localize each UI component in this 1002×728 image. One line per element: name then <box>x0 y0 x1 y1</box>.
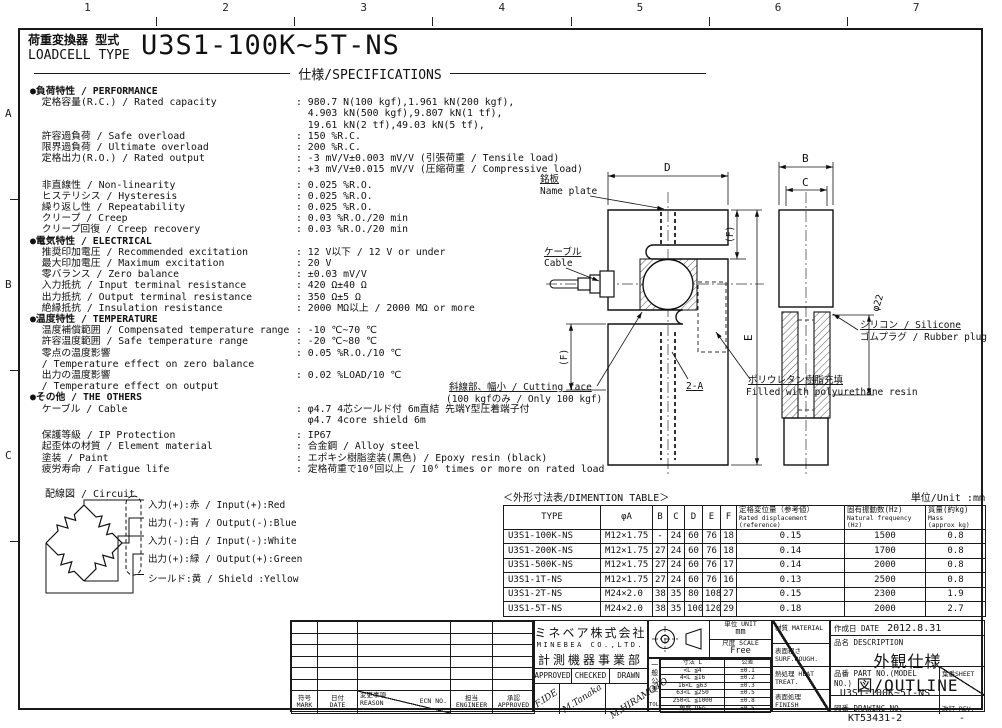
silicone-label-en: ゴムプラグ / Rubber plug <box>860 331 987 343</box>
tolerance-row: 角度 DEG±0.5 <box>661 705 771 713</box>
revision-empty-cell <box>451 679 493 691</box>
spec-value: : 合金鋼 / Alloy steel <box>296 441 420 452</box>
dim-table-row: U3S1-200K-NSM12×1.7527246076180.1417000.… <box>504 544 986 559</box>
revision-empty-cell <box>451 633 493 645</box>
revision-empty-cell <box>318 656 358 668</box>
revision-empty-cell <box>292 645 318 657</box>
rubber-plug-left <box>782 312 798 418</box>
dim-table-cell: 2.7 <box>926 602 986 617</box>
revision-empty-cell <box>358 633 451 645</box>
dim-col-header: φA <box>601 506 653 530</box>
tolerance-row: 250<L ≦1000±0.8 <box>661 697 771 705</box>
silicone-label-jp: シリコン / Silicone <box>860 320 961 331</box>
revision-header-cell: 符号 MARK <box>292 691 318 714</box>
spec-label: 非直線性 / Non-linearity <box>30 180 296 191</box>
dim-table-cell: U3S1-100K-NS <box>504 529 601 544</box>
dim-table-cell: 35 <box>668 587 685 602</box>
material-label: 材質 MATERIAL <box>773 621 829 644</box>
border-tick <box>156 17 157 26</box>
cutting-face-leader <box>597 312 642 386</box>
dim-table-cell: 0.8 <box>926 529 986 544</box>
dim-col-header-main: 定格変位量（参考値） <box>739 506 842 515</box>
approved-column-label: APPROVED <box>534 669 572 683</box>
dim-table-cell: 24 <box>668 544 685 559</box>
revision-empty-cell <box>358 656 451 668</box>
general-tolerance-label-en: TOL <box>649 702 659 710</box>
sheet-label: 葉番SHEET <box>942 668 982 678</box>
dim-table-cell: 17 <box>721 558 737 573</box>
company-block: ミネベア株式会社 MINEBEA CO.,LTD. 計測機器事業部 APPROV… <box>533 620 648 712</box>
spec-value: : 420 Ω±40 Ω <box>296 280 367 291</box>
border-tick <box>847 17 848 26</box>
spec-value: : 980.7 N(100 kgf),1.961 kN(200 kgf), 4.… <box>296 97 514 131</box>
cable-gland-nut <box>600 271 614 297</box>
dim-col-header-main: 固有振動数(Hz) <box>847 506 923 515</box>
dim-table-cell: 27 <box>721 587 737 602</box>
spec-value: : 200 %R.C. <box>296 142 361 153</box>
revision-table: 符号 MARK日付 DATE変更事項 REASONECN NO.担当 ENGIN… <box>290 620 533 712</box>
dim-col-header: 質量(約kg)Mass (approx kg) <box>926 506 986 530</box>
spec-label: 許容過負荷 / Safe overload <box>30 131 296 142</box>
tolerance-cell: 角度 DEG <box>661 705 725 713</box>
dim-label-F-bottom: (F) <box>559 349 570 366</box>
border-column-number: 5 <box>637 1 644 14</box>
surface-roughness-label: 表面粗さ SURF.ROUGH. <box>773 644 829 667</box>
dim-col-header-main: 質量(約kg) <box>928 506 983 515</box>
company-name-en: MINEBEA CO.,LTD. <box>534 641 647 649</box>
dim-col-header: TYPE <box>504 506 601 530</box>
unit-scale-box: 単位 UNIT mm 尺度 SCALE Free <box>709 620 772 658</box>
spec-label: 入力抵抗 / Input terminal resistance <box>30 280 296 291</box>
spec-value: : 0.025 %R.O. <box>296 191 373 202</box>
revision-empty-cell <box>318 622 358 634</box>
dim-col-header-main: C <box>670 513 682 522</box>
dim-col-header-sub: Rated displacement (reference) <box>739 515 842 529</box>
dim-table-cell: M24×2.0 <box>601 587 653 602</box>
dim-col-header: F <box>721 506 737 530</box>
rev-label: 改訂 REV. <box>942 705 975 713</box>
wire-label: 入力(-):白 / Input(-):White <box>148 533 297 547</box>
material-finish-block: 材質 MATERIAL 表面粗さ SURF.ROUGH. 熱処理 HEAT TR… <box>772 620 830 712</box>
center-hole <box>643 260 693 310</box>
dim-table-cell: M12×1.75 <box>601 544 653 559</box>
dim-col-header: D <box>685 506 703 530</box>
dim-table-cell: 76 <box>703 573 721 588</box>
revision-empty-cell <box>451 656 493 668</box>
spec-value: : 0.025 %R.O. <box>296 202 373 213</box>
spec-label: 定格出力(R.O.) / Rated output <box>30 153 296 175</box>
dim-col-header-sub: Natural frequency (Hz) <box>847 515 923 529</box>
revision-empty-cell <box>358 622 451 634</box>
dim-col-header-main: φA <box>603 513 650 522</box>
dim-table-cell: 60 <box>685 529 703 544</box>
specifications-heading-text: 仕様/SPECIFICATIONS <box>298 64 441 83</box>
dim-col-header-sub: Mass (approx kg) <box>928 515 983 529</box>
ecn-label: ECN NO. <box>420 698 447 706</box>
border-column-number: 3 <box>360 1 367 14</box>
two-a-label: 2-A <box>686 381 703 392</box>
spec-value: : -10 ℃~70 ℃ <box>296 325 377 336</box>
spec-label: 保護等級 / IP Protection <box>30 430 296 441</box>
dim-table-row: U3S1-100K-NSM12×1.75-246076180.1515000.8 <box>504 529 986 544</box>
dim-table-cell: 1.9 <box>926 587 986 602</box>
spec-value: : -20 ℃~80 ℃ <box>296 336 377 347</box>
general-tolerance-label: 一般公差 TOL <box>649 659 660 711</box>
revision-empty-cell <box>493 622 535 634</box>
specifications-heading: 仕様/SPECIFICATIONS <box>34 64 706 83</box>
resin-cavity-hidden <box>698 282 726 352</box>
loadcell-type-label-en: LOADCELL TYPE <box>28 48 130 63</box>
border-column-number: 6 <box>775 1 782 14</box>
dim-table-cell: 27 <box>653 573 668 588</box>
company-division: 計測機器事業部 <box>534 651 647 668</box>
revision-empty-cell <box>292 679 318 691</box>
dim-col-header-main: D <box>687 513 700 522</box>
projection-symbol-box <box>648 620 710 658</box>
spec-value: : 12 V以下 / 12 V or under <box>296 247 445 258</box>
dim-col-header: 固有振動数(Hz)Natural frequency (Hz) <box>845 506 926 530</box>
dim-table-cell: U3S1-500K-NS <box>504 558 601 573</box>
revision-empty-cell <box>493 645 535 657</box>
wire-label: シールド:黄 / Shield :Yellow <box>148 571 298 585</box>
name-plate-label-en: Name plate <box>540 186 597 197</box>
spec-value: : 20 V <box>296 258 331 269</box>
surface-finish-label: 表面処理 FINISH <box>773 690 829 713</box>
checked-signature: M.Tanaka <box>561 683 604 716</box>
spec-value: : 0.03 %R.O./20 min <box>296 224 408 235</box>
revision-empty-cell <box>493 633 535 645</box>
dim-table-cell: U3S1-1T-NS <box>504 573 601 588</box>
revision-header-cell: 担当 ENGINEER <box>451 691 493 714</box>
revision-empty-cell <box>358 645 451 657</box>
spec-row: 定格容量(R.C.) / Rated capacity: 980.7 N(100… <box>30 97 570 131</box>
dim-table-cell: U3S1-2T-NS <box>504 587 601 602</box>
revision-empty-cell <box>358 679 451 691</box>
heading-rule-right <box>450 73 706 75</box>
dim-table-cell: 0.8 <box>926 544 986 559</box>
dim-table-cell: 16 <box>721 573 737 588</box>
revision-empty-row <box>292 622 535 634</box>
revision-empty-row <box>292 679 535 691</box>
spec-value: : 0.03 %R.O./20 min <box>296 213 408 224</box>
revision-empty-cell <box>292 656 318 668</box>
dim-table-cell: 29 <box>721 602 737 617</box>
border-column-number: 1 <box>84 1 91 14</box>
heat-treatment-label: 熱処理 HEAT TREAT. <box>773 667 829 690</box>
revision-empty-cell <box>358 668 451 680</box>
dim-table-cell: 18 <box>721 529 737 544</box>
revision-empty-cell <box>292 622 318 634</box>
dim-label-E: E <box>742 334 755 341</box>
revision-reason-wrap: 変更事項 REASONECN NO. <box>358 691 450 713</box>
spec-label: 疲労寿命 / Fatigue life <box>30 464 296 475</box>
dim-label-F-top: (F) <box>725 226 736 243</box>
dim-label-B: B <box>802 152 809 165</box>
revision-empty-cell <box>451 645 493 657</box>
dim-col-header-main: E <box>705 513 718 522</box>
dim-col-header-main: B <box>655 513 665 522</box>
spec-value: : 0.025 %R.O. <box>296 180 373 191</box>
dimension-table-unit: 単位/Unit :mm <box>911 489 985 505</box>
dim-table-cell: 80 <box>685 587 703 602</box>
spec-label: 起歪体の材質 / Element material <box>30 441 296 452</box>
revision-empty-cell <box>451 668 493 680</box>
dim-table-cell: M12×1.75 <box>601 529 653 544</box>
silicone-leader <box>833 314 858 330</box>
dim-table-cell: 0.14 <box>737 544 845 559</box>
rubber-plug-right <box>814 312 830 418</box>
dim-col-header-main: TYPE <box>506 513 598 522</box>
revision-empty-cell <box>292 668 318 680</box>
dim-table-cell: 0.13 <box>737 573 845 588</box>
dim-col-header-main: F <box>723 513 734 522</box>
dimension-table-grid: TYPEφABCDEF定格変位量（参考値）Rated displacement … <box>503 505 986 617</box>
dim-table-cell: 24 <box>668 558 685 573</box>
spec-label: 出力の温度影響 / Temperature effect on output <box>30 370 296 392</box>
spec-label: 塗装 / Paint <box>30 453 296 464</box>
dim-table-cell: M24×2.0 <box>601 602 653 617</box>
spec-label: 零バランス / Zero balance <box>30 269 296 280</box>
dim-table-cell: 76 <box>703 529 721 544</box>
drawing-info-block: 作成日 DATE 2012.8.31 品名 DESCRIPTION 外観仕様図/… <box>830 620 985 712</box>
drawing-sheet: 1234567 ABC 荷重変換器 型式 LOADCELL TYPE U3S1-… <box>0 0 1002 728</box>
dim-table-cell: 35 <box>668 602 685 617</box>
border-tick <box>432 17 433 26</box>
third-angle-projection-icon <box>649 621 709 657</box>
dim-table-cell: 18 <box>721 544 737 559</box>
tolerance-col1-header: 寸法 L <box>661 660 725 668</box>
cable-label-en: Cable <box>544 258 573 269</box>
wire-label: 出力(+):緑 / Output(+):Green <box>148 551 302 565</box>
dim-table-cell: 27 <box>653 544 668 559</box>
spec-value: : 0.02 %LOAD/10 ℃ <box>296 370 401 392</box>
approved-signature: F.IDE <box>533 688 559 710</box>
spec-value: : 150 %R.C. <box>296 131 361 142</box>
dim-table-cell: 0.8 <box>926 558 986 573</box>
dim-table-cell: 1700 <box>845 544 926 559</box>
spec-label: 絶縁抵抗 / Insulation resistance <box>30 303 296 314</box>
border-row-letter: A <box>5 107 12 120</box>
dim-label-D: D <box>664 161 671 174</box>
dim-table-cell: 76 <box>703 558 721 573</box>
checked-column-label: CHECKED <box>572 669 610 683</box>
spec-label: ケーブル / Cable <box>30 404 296 426</box>
revision-empty-cell <box>493 668 535 680</box>
dim-table-cell: 60 <box>685 558 703 573</box>
spec-label: クリープ / Creep <box>30 213 296 224</box>
revision-empty-row <box>292 656 535 668</box>
spec-label: 許容温度範囲 / Safe temperature range <box>30 336 296 347</box>
border-tick <box>10 199 18 200</box>
spec-label: 限界過負荷 / Ultimate overload <box>30 142 296 153</box>
dim-table-cell: U3S1-200K-NS <box>504 544 601 559</box>
dim-table-cell: 38 <box>653 587 668 602</box>
revision-empty-row <box>292 645 535 657</box>
revision-empty-cell <box>493 679 535 691</box>
border-tick <box>10 541 18 542</box>
border-tick <box>571 17 572 26</box>
dim-table-cell: 2500 <box>845 573 926 588</box>
spec-value: : ±0.03 mV/V <box>296 269 367 280</box>
tolerance-cell: ±0.8 <box>725 697 771 705</box>
revision-header-row: 符号 MARK日付 DATE変更事項 REASONECN NO.担当 ENGIN… <box>292 691 535 714</box>
date-value: 2012.8.31 <box>887 623 941 634</box>
company-name-jp: ミネベア株式会社 <box>534 624 647 641</box>
spec-label: クリープ回復 / Creep recovery <box>30 224 296 235</box>
revision-empty-row <box>292 633 535 645</box>
spec-section-header: ●負荷特性 / PERFORMANCE <box>30 86 570 97</box>
border-row-letter: C <box>5 449 12 462</box>
cable-label-jp: ケーブル <box>544 246 582 258</box>
spec-label: 定格容量(R.C.) / Rated capacity <box>30 97 296 131</box>
revision-empty-cell <box>318 633 358 645</box>
dim-table-cell: 0.14 <box>737 558 845 573</box>
name-plate-label-jp: 銘板 <box>540 173 560 185</box>
dim-table-cell: M12×1.75 <box>601 573 653 588</box>
dim-table-cell: 24 <box>668 573 685 588</box>
dim-col-header: E <box>703 506 721 530</box>
border-tick <box>10 370 18 371</box>
wire-label: 出力(-):青 / Output(-):Blue <box>148 515 297 529</box>
dim-table-row: U3S1-1T-NSM12×1.7527246076160.1325000.8 <box>504 573 986 588</box>
border-tick <box>709 17 710 26</box>
loadcell-type-label-jp: 荷重変換器 型式 <box>28 31 119 48</box>
dimension-table: ＜外形寸法表/DIMENTION TABLE＞ 単位/Unit :mm TYPE… <box>503 489 985 617</box>
dimension-table-title: ＜外形寸法表/DIMENTION TABLE＞ <box>503 489 669 505</box>
part-no-label: 品番 PART NO.(MODEL NO.) <box>834 668 936 688</box>
heading-rule-left <box>34 73 290 75</box>
resin-label-jp: ポリウレタン樹脂充填 <box>748 374 844 386</box>
dim-table-cell: M12×1.75 <box>601 558 653 573</box>
spec-label: ヒステリシス / Hysteresis <box>30 191 296 202</box>
dim-table-cell: 2000 <box>845 602 926 617</box>
border-tick <box>294 17 295 26</box>
outline-drawing: D B C E (F) (F) φ22 銘板 Name plate <box>430 140 990 485</box>
dim-table-cell: 120 <box>703 602 721 617</box>
dim-table-cell: 60 <box>685 544 703 559</box>
spec-label: 推奨印加電圧 / Recommended excitation <box>30 247 296 258</box>
dim-label-C: C <box>802 176 809 189</box>
tolerance-cell: ±0.5 <box>725 705 771 713</box>
revision-reason-header: 変更事項 REASONECN NO. <box>358 691 451 714</box>
dim-table-row: U3S1-500K-NSM12×1.7527246076170.1420000.… <box>504 558 986 573</box>
revision-header-cell: 日付 DATE <box>318 691 358 714</box>
cutting-face-label-jp: 斜線部、幅小 / Cutting face <box>449 381 592 393</box>
reason-label: 変更事項 REASON <box>360 692 386 707</box>
revision-empty-cell <box>493 656 535 668</box>
dim-table-cell: 0.15 <box>737 529 845 544</box>
cutting-face-label-en: (100 kgfのみ / Only 100 kgf) <box>446 394 602 405</box>
dim-table-cell: 2000 <box>845 558 926 573</box>
border-column-number: 7 <box>913 1 920 14</box>
dim-table-cell: U3S1-5T-NS <box>504 602 601 617</box>
dim-table-cell: 0.18 <box>737 602 845 617</box>
rev-value: - <box>942 713 982 724</box>
revision-empty-row <box>292 668 535 680</box>
dim-table-cell: 76 <box>703 544 721 559</box>
spec-value: : 0.05 %R.O./10 ℃ <box>296 348 401 370</box>
spec-value: : 350 Ω±5 Ω <box>296 292 361 303</box>
revision-empty-cell <box>292 633 318 645</box>
drawing-no-label: 図番 DRAWING NO. <box>834 704 903 713</box>
revision-empty-cell <box>451 622 493 634</box>
dim-table-row: U3S1-5T-NSM24×2.03835100120290.1820002.7 <box>504 602 986 617</box>
name-plate-leader <box>590 196 664 209</box>
revision-empty-cell <box>318 679 358 691</box>
dim-col-header: 定格変位量（参考値）Rated displacement (reference) <box>737 506 845 530</box>
spec-label: 零点の温度影響 / Temperature effect on zero bal… <box>30 348 296 370</box>
drawing-no-value: KT53431-2 <box>834 713 936 724</box>
border-column-number: 2 <box>222 1 229 14</box>
resin-label-en: Filled with polyurethane resin <box>746 387 918 398</box>
dim-col-header: B <box>653 506 668 530</box>
date-label: 作成日 DATE <box>834 623 879 634</box>
dim-table-cell: 1500 <box>845 529 926 544</box>
dim-table-cell: 60 <box>685 573 703 588</box>
dim-label-dia22: φ22 <box>870 293 886 313</box>
description-label: 品名 DESCRIPTION <box>834 637 981 648</box>
spec-label: 繰り返し性 / Repeatability <box>30 202 296 213</box>
revision-header-cell: 承認 APPROVED <box>493 691 535 714</box>
spec-label: 温度補償範囲 / Compensated temperature range <box>30 325 296 336</box>
general-tolerance-label-jp: 一般公差 <box>650 661 658 693</box>
dim-table-row: U3S1-2T-NSM24×2.0383580108270.1523001.9 <box>504 587 986 602</box>
dim-table-cell: 24 <box>668 529 685 544</box>
spec-label: 最大印加電圧 / Maximum excitation <box>30 258 296 269</box>
tolerance-cell: 250<L ≦1000 <box>661 697 725 705</box>
border-row-letter: B <box>5 278 12 291</box>
dim-table-cell: 100 <box>685 602 703 617</box>
revision-empty-cell <box>318 645 358 657</box>
unit-value: mm <box>710 628 771 637</box>
model-number: U3S1-100K~5T-NS <box>141 30 400 61</box>
dim-table-cell: 2300 <box>845 587 926 602</box>
dim-table-cell: 38 <box>653 602 668 617</box>
dim-table-cell: 108 <box>703 587 721 602</box>
spec-value: : IP67 <box>296 430 331 441</box>
tolerance-col2-header: 公差 <box>725 660 771 668</box>
dim-table-cell: - <box>653 529 668 544</box>
dim-col-header: C <box>668 506 685 530</box>
wire-label: 入力(+):赤 / Input(+):Red <box>148 497 285 511</box>
dim-table-cell: 27 <box>653 558 668 573</box>
scale-value: Free <box>710 647 771 656</box>
drawn-column-label: DRAWN <box>610 669 647 683</box>
spec-label: 出力抵抗 / Output terminal resistance <box>30 292 296 303</box>
dim-table-cell: 0.8 <box>926 573 986 588</box>
revision-empty-cell <box>318 668 358 680</box>
tolerance-table: 一般公差 TOL 寸法 L 公差 <L ≦4±0.14<L ≦16±0.216<… <box>648 658 772 712</box>
border-column-number: 4 <box>499 1 506 14</box>
bridge-circuit-drawing <box>30 495 330 605</box>
dim-table-cell: 0.15 <box>737 587 845 602</box>
